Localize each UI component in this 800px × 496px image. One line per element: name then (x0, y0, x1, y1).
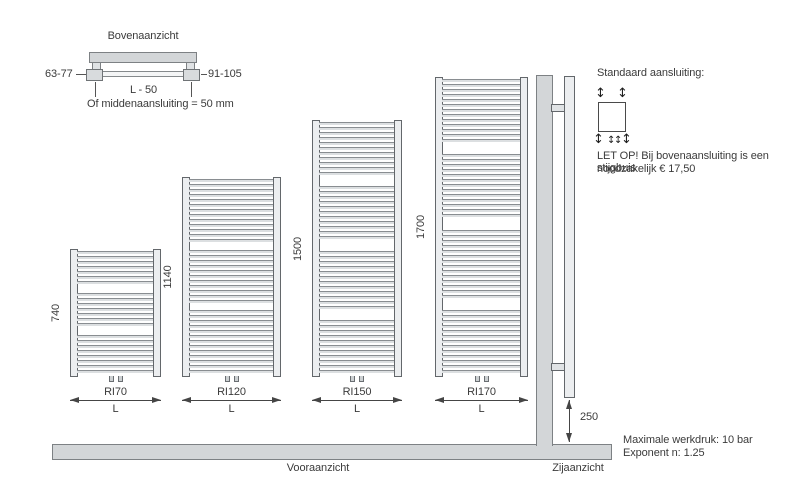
radiator-tube (442, 129, 521, 132)
radiator-tube (442, 104, 521, 107)
radiator-tube (442, 114, 521, 117)
radiator-tube (442, 159, 521, 162)
tube-group (319, 251, 395, 309)
radiator-tube (319, 276, 395, 279)
radiator-tube (442, 370, 521, 373)
connection-arrow-icon: ↕ (593, 133, 604, 146)
radiator-tube (319, 172, 395, 175)
radiator-tube (442, 320, 521, 323)
radiator-tube (442, 325, 521, 328)
radiator-tube (442, 355, 521, 358)
radiator-tube (319, 335, 395, 338)
tube-group (189, 250, 274, 303)
radiator-tube (189, 204, 274, 207)
max-pressure-spec: Maximale werkdruk: 10 bar (623, 434, 753, 446)
connection-arrow-icon: ↕ (621, 133, 632, 146)
radiator-tube (189, 224, 274, 227)
width-dimension-arrow (312, 400, 402, 401)
radiator-tube (442, 340, 521, 343)
radiator-tube (442, 184, 521, 187)
radiator-tube (319, 286, 395, 289)
radiator-tube (442, 164, 521, 167)
radiator-tube (442, 295, 521, 298)
floor (52, 444, 612, 460)
radiator-tube (319, 206, 395, 209)
radiator-tube (319, 167, 395, 170)
radiator-tube (319, 186, 395, 189)
radiator-tube (319, 221, 395, 224)
top-view-bracket-left (86, 69, 103, 81)
radiator-tube (319, 306, 395, 309)
radiator-tube (77, 271, 154, 274)
radiator-rail-right (520, 77, 528, 377)
connection-schematic-box (598, 102, 626, 132)
radiator-tube (319, 162, 395, 165)
radiator-tube (319, 137, 395, 140)
radiator-tube (319, 340, 395, 343)
side-view-radiator-profile (564, 76, 575, 398)
radiator-tube (442, 119, 521, 122)
radiator-tube (189, 315, 274, 318)
radiator-tube (189, 209, 274, 212)
pipe-connection-stub (484, 376, 489, 382)
tube-group (319, 186, 395, 239)
radiator-tube (189, 370, 274, 373)
radiator-tube (319, 132, 395, 135)
radiator-tube (189, 310, 274, 313)
radiator-tube (189, 189, 274, 192)
radiator-tube (77, 293, 154, 296)
wall-bracket-top (551, 104, 565, 112)
radiator-tube (319, 325, 395, 328)
radiator-tubes (442, 79, 521, 373)
radiator-tube (319, 127, 395, 130)
radiator-tube (189, 365, 274, 368)
radiator-tube (189, 295, 274, 298)
width-dimension-label: L (312, 403, 402, 415)
radiator-tube (189, 265, 274, 268)
radiator-tube (442, 335, 521, 338)
radiator-tube (189, 260, 274, 263)
radiator-tube (319, 266, 395, 269)
radiator-tube (77, 303, 154, 306)
radiator-tube (319, 261, 395, 264)
width-dimension-arrow (182, 400, 281, 401)
radiator-tube (189, 325, 274, 328)
top-view-title: Bovenaanzicht (89, 30, 197, 42)
radiator-tube (442, 330, 521, 333)
radiator-tube (319, 256, 395, 259)
top-view-radiator-body (89, 52, 197, 63)
height-dimension-label: 1140 (162, 265, 174, 288)
radiator-tube (442, 99, 521, 102)
model-name: RI150 (312, 386, 402, 398)
tube-group (442, 310, 521, 373)
radiator-tube (442, 235, 521, 238)
radiator-ri120: 1140 RI120 L (182, 177, 281, 377)
radiator-tube (442, 124, 521, 127)
exponent-spec: Exponent n: 1.25 (623, 447, 705, 459)
radiator-tube (319, 216, 395, 219)
height-dimension-label: 740 (50, 304, 62, 322)
radiator-tube (77, 370, 154, 373)
radiator-tube (77, 276, 154, 279)
tube-group (77, 251, 154, 284)
radiator-tube (189, 290, 274, 293)
radiator-tubes (319, 122, 395, 373)
radiator-tube (77, 345, 154, 348)
floor-clearance-dimension: 250 (580, 411, 598, 423)
radiator-tube (442, 174, 521, 177)
width-dimension-label: L (70, 403, 161, 415)
radiator-tube (319, 296, 395, 299)
tube-group (77, 293, 154, 326)
radiator-tube (442, 360, 521, 363)
radiator-tube (189, 194, 274, 197)
radiator-tube (442, 310, 521, 313)
pipe-connection-stub (118, 376, 123, 382)
radiator-tube (319, 152, 395, 155)
radiator-tube (442, 250, 521, 253)
radiator-tube (319, 320, 395, 323)
radiator-tube (319, 281, 395, 284)
width-dimension-label: L (435, 403, 528, 415)
radiator-tube (189, 270, 274, 273)
radiator-tube (189, 280, 274, 283)
radiator-tube (442, 209, 521, 212)
side-view-label: Zijaanzicht (528, 462, 628, 474)
radiator-ri170: 1700 RI170 L (435, 77, 528, 377)
radiator-tube (442, 365, 521, 368)
radiator-tube (189, 255, 274, 258)
radiator-tube (77, 335, 154, 338)
radiator-tube (189, 214, 274, 217)
top-view-mounting-rail (100, 71, 187, 77)
radiator-tube (189, 229, 274, 232)
radiator-tube (77, 318, 154, 321)
radiator-tube (77, 365, 154, 368)
radiator-tube (189, 275, 274, 278)
radiator-tube (189, 234, 274, 237)
radiator-tube (77, 323, 154, 326)
radiator-tube (319, 251, 395, 254)
radiator-tube (189, 345, 274, 348)
radiator-tube (442, 179, 521, 182)
radiator-tube (442, 265, 521, 268)
radiator-tube (442, 290, 521, 293)
radiator-tube (319, 147, 395, 150)
wall-distance-dimension-right: 91-105 (208, 68, 242, 80)
radiator-tube (77, 281, 154, 284)
tube-group (442, 154, 521, 217)
wall (536, 75, 553, 446)
radiator-tube (442, 214, 521, 217)
radiator-tube (442, 270, 521, 273)
radiator-tube (442, 350, 521, 353)
width-dimension-label: L (182, 403, 281, 415)
model-name: RI70 (70, 386, 161, 398)
width-dimension-arrow (70, 400, 161, 401)
radiator-tube (319, 345, 395, 348)
radiator-tube (319, 142, 395, 145)
floor-clearance-arrow (569, 400, 570, 442)
radiator-tube (77, 355, 154, 358)
bracket-spacing-dimension: L - 50 (96, 84, 191, 96)
radiator-tube (442, 260, 521, 263)
radiator-tube (442, 94, 521, 97)
radiator-tube (319, 157, 395, 160)
radiator-tube (442, 89, 521, 92)
tube-group (189, 310, 274, 373)
radiator-tube (189, 340, 274, 343)
radiator-rail-right (153, 249, 161, 377)
radiator-tube (442, 204, 521, 207)
radiator-tube (319, 370, 395, 373)
width-dimension-arrow (435, 400, 528, 401)
radiator-tube (319, 191, 395, 194)
radiator-tube (189, 219, 274, 222)
radiator-ri70: 740 RI70 L (70, 249, 161, 377)
pipe-connection-stub (350, 376, 355, 382)
radiator-tube (442, 275, 521, 278)
radiator-rail-right (394, 120, 402, 377)
radiator-tube (77, 360, 154, 363)
radiator-tube (442, 345, 521, 348)
warning-note-line2: noodzakelijk € 17,50 (597, 163, 695, 175)
radiator-tube (442, 199, 521, 202)
radiator-tube (442, 194, 521, 197)
radiator-tube (319, 231, 395, 234)
radiator-tube (442, 84, 521, 87)
model-name: RI170 (435, 386, 528, 398)
center-connection-note: Of middenaansluiting = 50 mm (87, 98, 234, 110)
radiator-tube (442, 230, 521, 233)
radiator-tube (442, 154, 521, 157)
radiator-tubes (77, 251, 154, 373)
tube-group (442, 230, 521, 298)
radiator-tube (319, 201, 395, 204)
radiator-tube (77, 251, 154, 254)
radiator-tube (189, 239, 274, 242)
radiator-tube (77, 256, 154, 259)
pipe-connection-stub (359, 376, 364, 382)
radiator-tubes (189, 179, 274, 373)
radiator-tube (319, 196, 395, 199)
dimension-tick (191, 82, 192, 97)
radiator-tube (442, 245, 521, 248)
pipe-connection-stub (475, 376, 480, 382)
radiator-tube (189, 285, 274, 288)
radiator-tube (189, 335, 274, 338)
connection-arrow-icon: ↕ (617, 87, 628, 100)
connection-arrow-icon: ↕ (595, 87, 606, 100)
tube-group (319, 320, 395, 373)
radiator-tube (189, 350, 274, 353)
wall-bracket-bottom (551, 363, 565, 371)
radiator-tube (189, 250, 274, 253)
pipe-connection-stub (234, 376, 239, 382)
radiator-tube (189, 330, 274, 333)
radiator-tube (189, 320, 274, 323)
radiator-tube (442, 280, 521, 283)
radiator-tube (77, 313, 154, 316)
tube-group (77, 335, 154, 373)
leader-line (76, 74, 86, 75)
radiator-tube (319, 330, 395, 333)
radiator-tube (77, 340, 154, 343)
radiator-tube (189, 300, 274, 303)
radiator-tube (442, 255, 521, 258)
radiator-tube (189, 360, 274, 363)
radiator-tube (319, 301, 395, 304)
pipe-connection-stub (225, 376, 230, 382)
front-view-label: Vooraanzicht (268, 462, 368, 474)
radiator-tube (319, 355, 395, 358)
radiator-tube (319, 211, 395, 214)
radiator-tube (319, 226, 395, 229)
radiator-tube (77, 261, 154, 264)
height-dimension-label: 1500 (292, 236, 304, 260)
leader-line (201, 74, 207, 75)
radiator-tube (319, 350, 395, 353)
radiator-tube (442, 240, 521, 243)
radiator-tube (189, 179, 274, 182)
radiator-tube (77, 266, 154, 269)
standard-connection-title: Standaard aansluiting: (597, 67, 704, 79)
radiator-rail-right (273, 177, 281, 377)
radiator-tube (319, 291, 395, 294)
radiator-tube (77, 298, 154, 301)
tube-group (189, 179, 274, 242)
tube-group (319, 122, 395, 175)
radiator-tube (442, 79, 521, 82)
radiator-tube (442, 189, 521, 192)
wall-distance-dimension-left: 63-77 (45, 68, 73, 80)
radiator-tube (319, 360, 395, 363)
radiator-tube (319, 236, 395, 239)
radiator-tube (319, 122, 395, 125)
height-dimension-label: 1700 (415, 215, 427, 239)
radiator-tube (442, 315, 521, 318)
radiator-tube (77, 350, 154, 353)
pipe-connection-stub (109, 376, 114, 382)
radiator-ri150: 1500 RI150 L (312, 120, 402, 377)
radiator-tube (442, 285, 521, 288)
top-view-bracket-right (183, 69, 200, 81)
radiator-tube (319, 365, 395, 368)
radiator-tube (319, 271, 395, 274)
radiator-tube (442, 134, 521, 137)
radiator-tube (189, 199, 274, 202)
radiator-tube (442, 109, 521, 112)
tube-group (442, 79, 521, 142)
radiator-tube (442, 139, 521, 142)
model-name: RI120 (182, 386, 281, 398)
radiator-spec-diagram: Bovenaanzicht 63-77 91-105 L - 50 Of mid… (0, 0, 800, 496)
radiator-tube (77, 308, 154, 311)
radiator-tube (189, 184, 274, 187)
radiator-tube (189, 355, 274, 358)
radiator-tube (442, 169, 521, 172)
